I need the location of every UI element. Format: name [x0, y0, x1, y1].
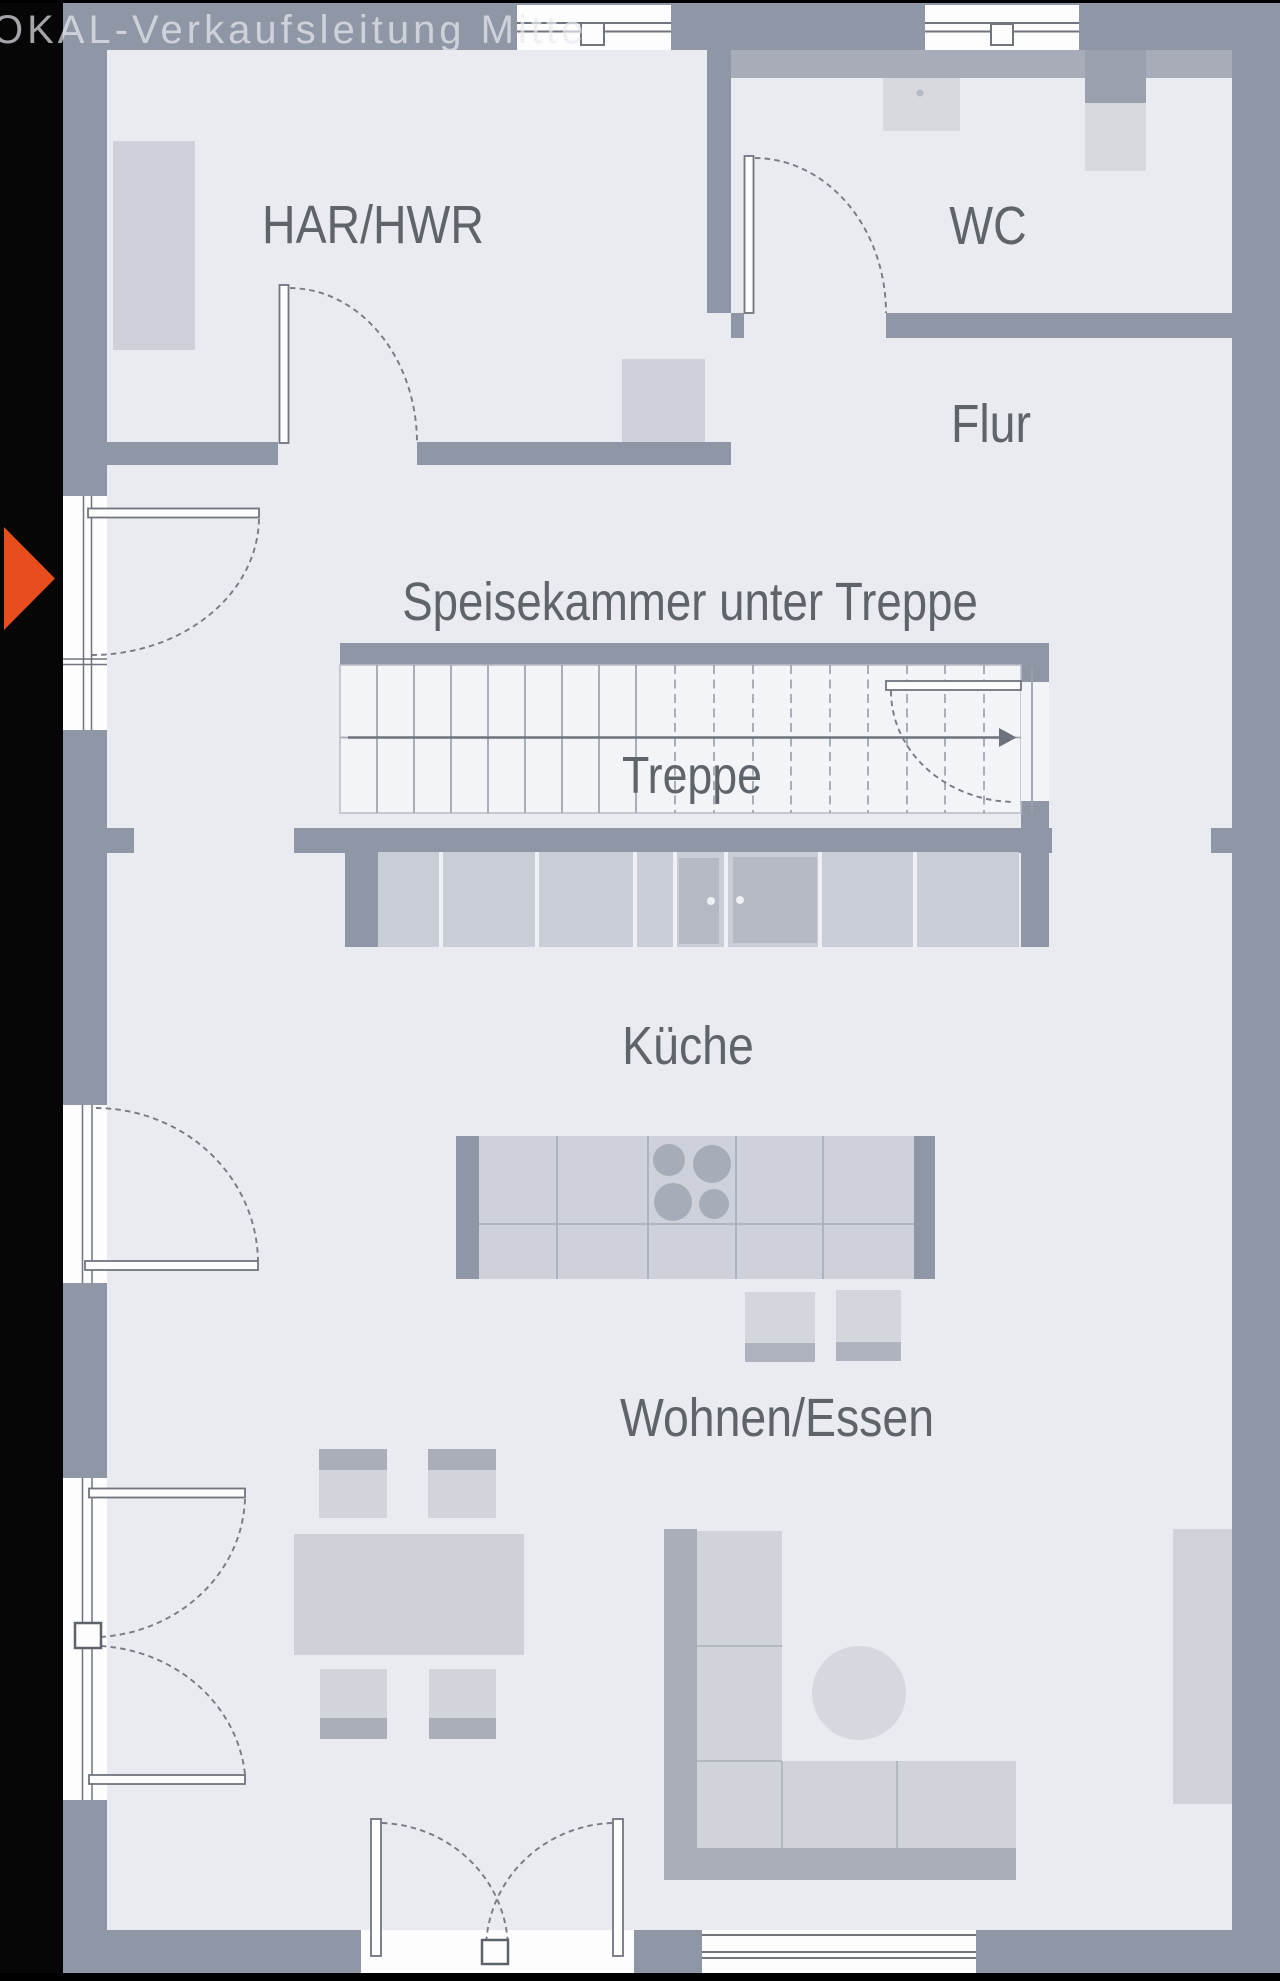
svg-text:HAR/HWR: HAR/HWR — [262, 194, 484, 255]
svg-text:OKAL-Verkaufsleitung Mitte: OKAL-Verkaufsleitung Mitte — [0, 8, 587, 52]
svg-text:Speisekammer unter Treppe: Speisekammer unter Treppe — [402, 571, 978, 631]
svg-text:Treppe: Treppe — [622, 747, 762, 805]
svg-text:WC: WC — [949, 195, 1026, 256]
svg-text:Flur: Flur — [951, 393, 1031, 454]
svg-text:Küche: Küche — [622, 1015, 754, 1076]
svg-text:Wohnen/Essen: Wohnen/Essen — [620, 1387, 934, 1448]
